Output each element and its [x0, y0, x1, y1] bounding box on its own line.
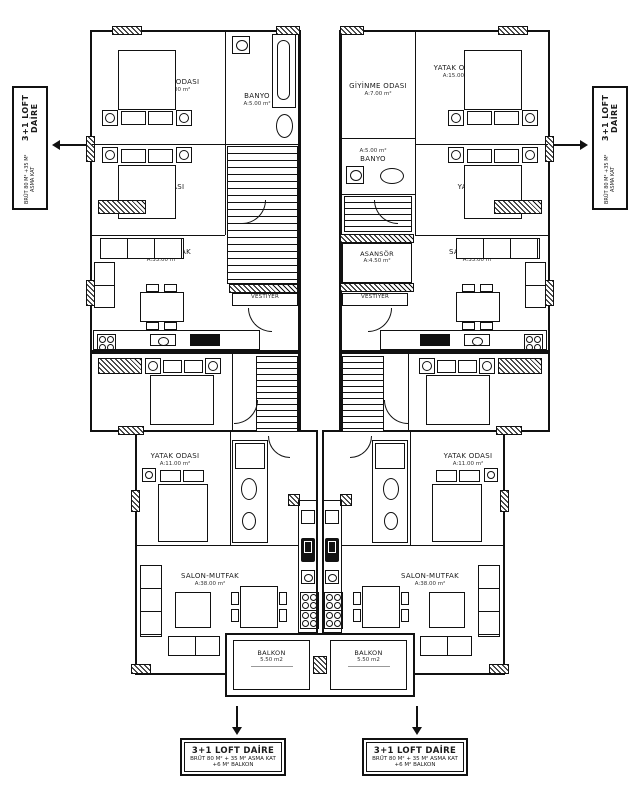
- shower: [235, 443, 265, 469]
- kitchen-counter: [93, 330, 260, 350]
- pillow: [494, 149, 519, 163]
- vestibule-box-ur: VESTİYER: [342, 293, 408, 306]
- pillow: [184, 360, 203, 373]
- chair: [146, 284, 159, 292]
- sofa: [100, 238, 184, 259]
- armchair: [94, 262, 115, 308]
- pillow: [436, 470, 457, 482]
- chair: [480, 284, 493, 292]
- wardrobe: [98, 358, 142, 374]
- sofa: [140, 565, 162, 637]
- balcony-right: BALKON 5.50 m2: [330, 640, 407, 690]
- sink: [384, 512, 398, 530]
- sink: [346, 166, 364, 184]
- elevator-wall: [340, 283, 414, 292]
- tag-subtitle: BRÜT 80 M² +35 M² ASMA KAT: [604, 150, 616, 208]
- chair: [279, 592, 287, 605]
- bed: [432, 484, 482, 542]
- dining-table: [362, 586, 400, 628]
- bed: [118, 50, 176, 110]
- chair: [462, 284, 475, 292]
- room-label-ur-bathroom: A:5.00 m² BANYO: [342, 148, 404, 164]
- wall: [225, 32, 226, 235]
- room-name: BALKON: [331, 649, 406, 657]
- pier: [340, 26, 364, 35]
- bed: [426, 375, 490, 425]
- tag-title: 3+1 LOFT DAİRE: [189, 746, 277, 756]
- left-unit-tag: BRÜT 80 M² +35 M² ASMA KAT 3+1 LOFT DAİR…: [12, 86, 48, 210]
- cabinet: [325, 510, 339, 524]
- pier: [500, 490, 509, 512]
- room-name: BANYO: [342, 155, 404, 164]
- tag-title: 3+1 LOFT DAİRE: [371, 746, 459, 756]
- tag-title: 3+1 LOFT DAİRE: [21, 88, 39, 148]
- floor-plan-canvas: YATAK ODASI A:15.00 m² YATAK ODASI A:14.…: [0, 0, 640, 800]
- wall: [410, 432, 411, 545]
- coffee-table: [175, 592, 211, 628]
- chair: [231, 609, 239, 622]
- bottom-left-unit-tag: 3+1 LOFT DAİRE BRÜT 80 M² + 35 M² ASMA K…: [180, 738, 286, 776]
- room-area: A:11.00 m²: [418, 461, 518, 468]
- chair: [353, 592, 361, 605]
- stove-burners: [300, 610, 319, 629]
- nightstand: [448, 147, 464, 163]
- pier: [131, 664, 151, 674]
- right-unit-tag: BRÜT 80 M² +35 M² ASMA KAT 3+1 LOFT DAİR…: [592, 86, 628, 210]
- nightstand: [484, 468, 498, 482]
- wall: [137, 545, 298, 546]
- sofa: [478, 565, 500, 637]
- stairs-upper-left: [227, 146, 298, 284]
- room-area: A:5.00 m²: [342, 148, 404, 155]
- nightstand: [522, 147, 538, 163]
- room-area: A:11.00 m²: [125, 461, 225, 468]
- wall: [415, 32, 416, 235]
- counter-appliance: [190, 334, 220, 346]
- toilet: [380, 168, 404, 184]
- nightstand: [205, 358, 221, 374]
- nightstand: [102, 147, 118, 163]
- wardrobe: [498, 358, 542, 374]
- wardrobe: [98, 200, 146, 214]
- chair: [164, 322, 177, 330]
- bottom-right-unit-tag: 3+1 LOFT DAİRE BRÜT 80 M² + 35 M² ASMA K…: [362, 738, 468, 776]
- room-area: A:7.00 m²: [328, 91, 428, 98]
- toilet: [241, 478, 257, 500]
- stove-burners: [300, 592, 319, 611]
- stairs-lower-right: [342, 356, 384, 432]
- dining-table: [240, 586, 278, 628]
- pier: [112, 26, 142, 35]
- tag-subtitle: BRÜT 80 M² +35 M² ASMA KAT: [24, 150, 36, 208]
- chair: [353, 609, 361, 622]
- stair-landing: [229, 284, 298, 293]
- room-area: A:4.50 m²: [342, 258, 412, 265]
- wall: [92, 144, 225, 145]
- wall: [230, 432, 231, 545]
- stove-burners: [324, 610, 343, 629]
- chair: [401, 609, 409, 622]
- cabinet: [301, 510, 315, 524]
- coffee-table: [429, 592, 465, 628]
- room-area: 5.50 m2: [234, 657, 309, 664]
- dining-table: [140, 292, 184, 322]
- bathtub: [272, 34, 296, 108]
- vestibule-label: VESTIYER: [233, 294, 297, 300]
- pier: [118, 426, 144, 435]
- nightstand: [479, 358, 495, 374]
- dining-table: [456, 292, 500, 322]
- kitchen-sink: [464, 334, 490, 346]
- toilet: [276, 114, 293, 138]
- nightstand: [176, 147, 192, 163]
- bed: [158, 484, 208, 542]
- pillow: [494, 111, 519, 125]
- shaft-wall-left: [299, 30, 301, 432]
- wall: [232, 354, 233, 430]
- room-name: YATAK ODASI: [125, 452, 225, 461]
- stove-burners: [524, 334, 543, 353]
- wall: [342, 194, 415, 195]
- chair: [164, 284, 177, 292]
- bed: [464, 50, 522, 110]
- pier: [489, 664, 509, 674]
- sink: [242, 512, 256, 530]
- kitchen-sink: [150, 334, 176, 346]
- pillow: [183, 470, 204, 482]
- pillow: [467, 111, 492, 125]
- nightstand: [419, 358, 435, 374]
- wall: [225, 144, 298, 145]
- pillow: [148, 149, 173, 163]
- pillow: [459, 470, 480, 482]
- arrow-down-icon: [412, 706, 422, 736]
- armchair: [525, 262, 546, 308]
- fine-print-line: [251, 666, 293, 667]
- room-name: BALKON: [234, 649, 309, 657]
- room-label-elevator: ASANSÖR A:4.50 m²: [342, 250, 412, 266]
- fine-print-line: [348, 666, 390, 667]
- pier: [313, 656, 327, 674]
- fridge-icon: [301, 538, 315, 562]
- shower: [375, 443, 405, 469]
- elevator-wall: [340, 234, 414, 243]
- pier: [496, 426, 522, 435]
- chair: [462, 322, 475, 330]
- wall: [342, 138, 415, 139]
- vestibule-box-ul: VESTIYER: [232, 293, 298, 306]
- room-name: SALON-MUTFAK: [160, 572, 260, 581]
- room-label-lr-bedroom-d: YATAK ODASI A:11.00 m²: [418, 452, 518, 468]
- pier: [545, 280, 554, 306]
- pillow: [121, 149, 146, 163]
- pillow: [121, 111, 146, 125]
- pier: [545, 136, 554, 162]
- room-label-ur-dressing: GİYİNME ODASI A:7.00 m²: [328, 82, 428, 98]
- oven: [301, 570, 315, 584]
- stove-burners: [97, 334, 116, 353]
- nightstand: [176, 110, 192, 126]
- arrow-down-icon: [232, 706, 242, 736]
- chair: [279, 609, 287, 622]
- sofa: [456, 238, 540, 259]
- counter-appliance: [420, 334, 450, 346]
- toilet: [383, 478, 399, 500]
- loveseat: [420, 636, 472, 656]
- room-label-ll-bedroom-d: YATAK ODASI A:11.00 m²: [125, 452, 225, 468]
- tag-line3: +6 M² BALKON: [189, 762, 277, 768]
- wall: [415, 235, 548, 236]
- room-name: GİYİNME ODASI: [328, 82, 428, 91]
- oven: [325, 570, 339, 584]
- stove-burners: [324, 592, 343, 611]
- pier: [498, 26, 528, 35]
- chair: [146, 322, 159, 330]
- arrow-left-icon: [52, 140, 86, 150]
- pier: [86, 136, 95, 162]
- chair: [480, 322, 493, 330]
- bed: [150, 375, 214, 425]
- nightstand: [448, 110, 464, 126]
- vestibule-label: VESTİYER: [343, 294, 407, 300]
- loveseat: [168, 636, 220, 656]
- pillow: [467, 149, 492, 163]
- room-name: SALON-MUTFAK: [380, 572, 480, 581]
- nightstand: [522, 110, 538, 126]
- pillow: [458, 360, 477, 373]
- sink: [232, 36, 250, 54]
- wall: [408, 354, 409, 430]
- pillow: [160, 470, 181, 482]
- nightstand: [142, 468, 156, 482]
- fridge-icon: [325, 538, 339, 562]
- room-area: 5.50 m2: [331, 657, 406, 664]
- pillow: [163, 360, 182, 373]
- balcony-label: BALKON 5.50 m2: [331, 649, 406, 667]
- wall: [415, 144, 548, 145]
- pier: [131, 490, 140, 512]
- room-name: YATAK ODASI: [418, 452, 518, 461]
- pillow: [437, 360, 456, 373]
- tag-line3: +6 M² BALKON: [371, 762, 459, 768]
- pillow: [148, 111, 173, 125]
- balcony-left: BALKON 5.50 m2: [233, 640, 310, 690]
- balcony-label: BALKON 5.50 m2: [234, 649, 309, 667]
- nightstand: [102, 110, 118, 126]
- arrow-right-icon: [554, 140, 588, 150]
- nightstand: [145, 358, 161, 374]
- wall: [92, 235, 225, 236]
- tag-title: 3+1 LOFT DAİRE: [601, 88, 619, 148]
- wardrobe: [494, 200, 542, 214]
- chair: [231, 592, 239, 605]
- wall: [342, 545, 503, 546]
- stairs-lower-left: [256, 356, 298, 432]
- chair: [401, 592, 409, 605]
